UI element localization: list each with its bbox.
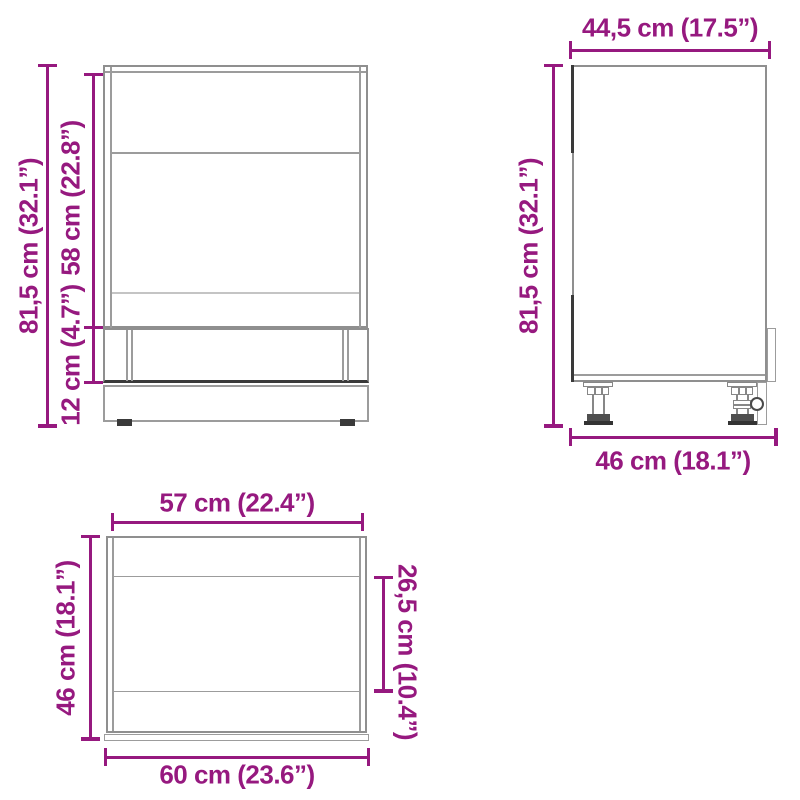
foot-pad-mark-right: [340, 419, 355, 426]
top-depth-label: 46 cm (18.1”): [51, 560, 82, 715]
side-panel-line-left: [110, 67, 112, 328]
side-panel-line-left: [112, 538, 114, 731]
plinth-outline: [103, 385, 369, 422]
dimension-tick: [361, 513, 365, 531]
front-upper-height-label: 58 cm (22.8”): [56, 120, 87, 275]
side-mount-rail: [767, 328, 776, 382]
bottom-panel-line: [574, 374, 765, 376]
shelf-line: [112, 292, 359, 294]
foot-bracket: [731, 387, 753, 395]
leg-line: [347, 330, 349, 381]
leg-line: [131, 330, 133, 381]
top-partial-depth-dimension-line: [382, 577, 385, 691]
foot-stem: [592, 395, 605, 414]
shelf-line-front: [114, 576, 359, 578]
top-partial-depth-label: 26,5 cm (10.4”): [392, 564, 423, 740]
dimension-tick: [374, 576, 393, 580]
top-inner-width-dimension-line: [112, 521, 363, 524]
front-edge-strip: [104, 734, 369, 741]
dimension-tick: [374, 689, 393, 693]
front-inner-dimension-line: [92, 74, 95, 383]
side-height-dimension-line: [552, 65, 555, 427]
dimension-tick: [84, 73, 103, 77]
door-edge-dark-lower: [571, 295, 574, 382]
dimension-tick: [544, 64, 563, 68]
door-divider-line: [112, 152, 359, 154]
dimension-tick: [104, 748, 108, 766]
adjustment-knob: [750, 397, 764, 411]
foot-bracket-notch: [738, 387, 740, 395]
side-bottom-depth-label: 46 cm (18.1”): [595, 446, 750, 477]
side-bottom-depth-dimension-line: [570, 436, 777, 439]
shelf-line-back: [114, 691, 359, 693]
dimension-tick: [84, 326, 103, 330]
top-inner-width-label: 57 cm (22.4”): [159, 488, 314, 519]
side-panel-line-right: [359, 67, 361, 328]
top-panel-line: [105, 71, 366, 73]
foot-bracket: [587, 387, 609, 395]
foot-base: [584, 421, 613, 425]
top-outer-width-dimension-line: [105, 756, 370, 759]
foot-pad-mark-left: [117, 419, 132, 426]
cabinet-dimension-diagram: 81,5 cm (32.1”) 58 cm (22.8”) 12 cm (4.7…: [0, 0, 800, 800]
side-height-label: 81,5 cm (32.1”): [514, 158, 545, 334]
side-panel-line-right: [359, 538, 361, 731]
foot-bracket-notch: [601, 387, 603, 395]
cabinet-side-outline: [572, 65, 767, 382]
carcass-outline: [103, 65, 368, 328]
top-depth-dimension-line: [89, 536, 92, 740]
leg-line: [126, 330, 128, 381]
dimension-tick: [569, 428, 573, 446]
side-top-depth-dimension-line: [570, 49, 770, 52]
dimension-tick: [768, 41, 772, 59]
dimension-tick: [84, 381, 103, 385]
dimension-tick: [367, 748, 371, 766]
drawer-front-outline: [103, 328, 369, 383]
top-outline: [106, 536, 367, 733]
dimension-tick: [38, 424, 57, 428]
front-total-height-label: 81,5 cm (32.1”): [14, 158, 45, 334]
door-edge-dark-upper: [571, 65, 574, 153]
dimension-tick: [81, 535, 100, 539]
foot-bracket-notch: [594, 387, 596, 395]
dimension-tick: [81, 737, 100, 741]
dimension-tick: [38, 64, 57, 68]
leg-line: [342, 330, 344, 381]
adjustment-screw-line: [733, 404, 751, 406]
dimension-tick: [569, 41, 573, 59]
front-total-height-dimension-line: [46, 65, 49, 427]
dimension-tick: [111, 513, 115, 531]
foot-bracket-notch: [745, 387, 747, 395]
side-top-depth-label: 44,5 cm (17.5”): [582, 13, 758, 44]
dimension-tick: [774, 428, 778, 446]
dimension-tick: [544, 424, 563, 428]
foot-base: [728, 421, 757, 425]
top-outer-width-label: 60 cm (23.6”): [159, 760, 314, 791]
front-plinth-height-label: 12 cm (4.7”): [56, 284, 87, 425]
